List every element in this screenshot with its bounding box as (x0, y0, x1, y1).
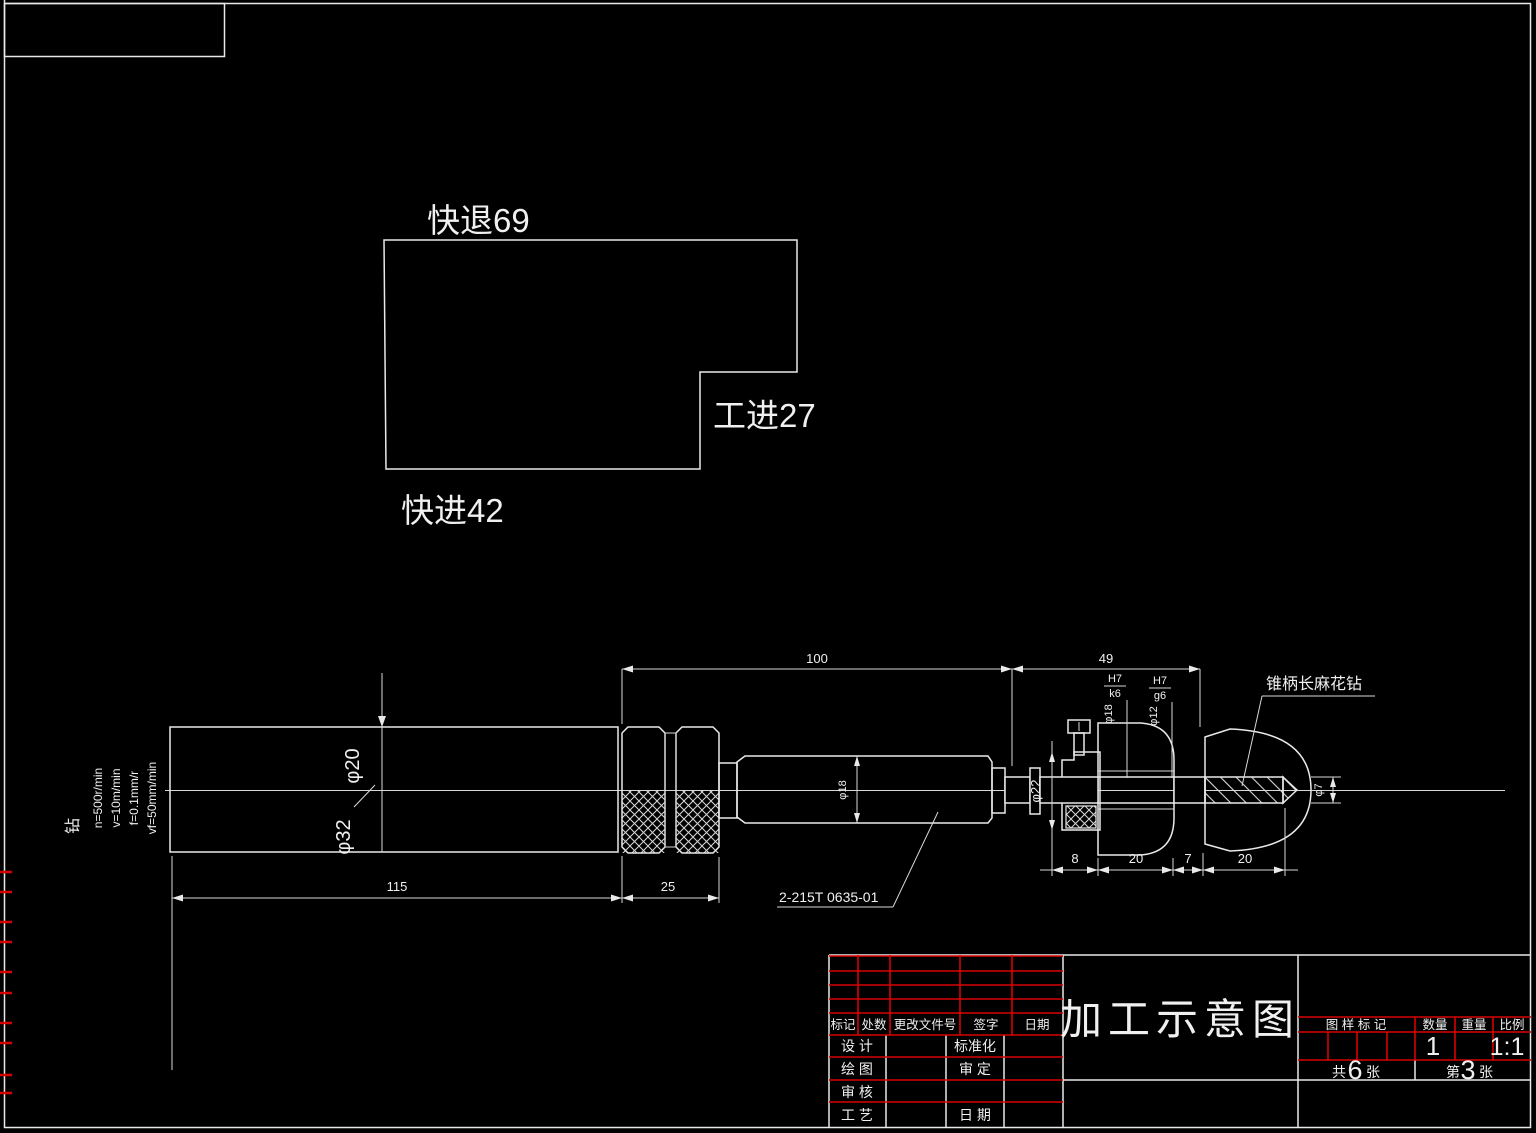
dim-dia32-text: φ32 (333, 819, 355, 854)
role-design: 设 计 (841, 1038, 873, 1054)
rev-header-count: 处数 (861, 1017, 887, 1032)
dim-115-25: 115 25 (172, 856, 719, 1070)
drill-point (1283, 777, 1297, 803)
spindle-assembly (165, 720, 1505, 855)
clamp-knurl-block (1066, 806, 1096, 828)
dim-115-text: 115 (387, 879, 408, 894)
stamp-scale-header: 比例 (1499, 1018, 1524, 1032)
dim-dia22-text: φ22 (1028, 780, 1043, 803)
dim-dia20-dia32: φ20 φ32 (333, 673, 386, 855)
fit1-dia: φ18 (1103, 704, 1115, 723)
stamp-weight-header: 重量 (1461, 1017, 1486, 1032)
param-velocity: v=10m/min (109, 768, 123, 827)
shank-stub (1005, 777, 1030, 803)
dim-dia18-text: φ18 (837, 780, 849, 799)
stamp-mark-header: 图 样 标 记 (1326, 1017, 1387, 1032)
dim-20b-text: 20 (1238, 851, 1252, 866)
dim-dia7-text: φ7 (1313, 783, 1325, 796)
cycle-label-rapid-advance: 快进42 (401, 492, 504, 529)
dim-fit-h7g6: H7 g6 φ12 (1148, 675, 1172, 778)
sheet-page-prefix: 第 (1446, 1064, 1460, 1080)
sheet-page-suffix: 张 (1479, 1064, 1493, 1080)
dim-20a-text: 20 (1129, 851, 1143, 866)
param-feed: f=0.1mm/r (127, 771, 141, 825)
sleeve-part-no-text: 2-215T 0635-01 (779, 889, 879, 905)
chuck-body (1098, 723, 1174, 855)
work-cycle-diagram: 快退69 工进27 快进42 (384, 202, 816, 529)
sheet-total-suffix: 张 (1366, 1064, 1380, 1080)
cycle-label-rapid-retract: 快退69 (427, 202, 530, 239)
role-date: 日 期 (959, 1107, 991, 1123)
drill-flutes (1205, 777, 1283, 803)
sheet-page-value: 3 (1460, 1055, 1475, 1085)
cad-canvas: 快退69 工进27 快进42 钻 n=500r/min v=10m/min f=… (0, 0, 1536, 1133)
fit2-den: g6 (1154, 690, 1166, 702)
dim-7-text: 7 (1184, 851, 1191, 866)
fit2-num: H7 (1153, 675, 1167, 687)
cycle-outline (384, 240, 797, 469)
rev-header-docno: 更改文件号 (894, 1017, 957, 1032)
fold-marks (0, 872, 12, 1093)
param-feed-rate: vf=50mm/min (145, 762, 159, 834)
role-standardize: 标准化 (954, 1038, 996, 1054)
rev-header-sign: 签字 (973, 1017, 998, 1032)
drill-shank-b (1174, 777, 1205, 803)
stamp-qty-header: 数量 (1422, 1017, 1447, 1032)
role-draw: 绘 图 (841, 1061, 873, 1077)
fit2-dia: φ12 (1148, 706, 1160, 725)
drill-name-text: 锥柄长麻花钻 (1266, 675, 1362, 693)
dim-dia20-text: φ20 (342, 748, 364, 783)
cycle-label-work-feed: 工进27 (713, 397, 816, 434)
role-process: 工 艺 (841, 1107, 873, 1123)
rev-header-date: 日期 (1024, 1018, 1049, 1032)
dim-49-text: 49 (1099, 651, 1113, 666)
dim-8-text: 8 (1071, 851, 1078, 866)
fit1-den: k6 (1109, 688, 1121, 700)
knurl-fill-1 (622, 791, 665, 853)
fit1-num: H7 (1108, 673, 1122, 685)
stamp-scale-value: 1:1 (1490, 1033, 1525, 1061)
role-check: 审 核 (841, 1084, 873, 1100)
stamp-qty-value: 1 (1426, 1031, 1440, 1061)
knurl-fill-2 (676, 791, 719, 853)
cad-drawing-page: 快退69 工进27 快进42 钻 n=500r/min v=10m/min f=… (0, 0, 1536, 1133)
dim-dia18-sleeve: φ18 (837, 756, 860, 823)
drill-sleeve (737, 756, 992, 823)
title-block: 标记 处数 更改文件号 签字 日期 设 计 绘 图 审 核 工 艺 标准化 审 … (829, 955, 1531, 1127)
cutting-parameters: 钻 n=500r/min v=10m/min f=0.1mm/r vf=50mm… (64, 762, 159, 834)
dim-25-text: 25 (661, 879, 675, 894)
drawing-title: 加工示意图 (1060, 996, 1300, 1043)
param-speed: n=500r/min (91, 768, 105, 828)
sleeve-part-label: 2-215T 0635-01 (777, 812, 938, 907)
sheet-total-value: 6 (1347, 1055, 1362, 1085)
dim-fit-h7k6: H7 k6 φ18 (1103, 673, 1127, 778)
sheet-total-prefix: 共 (1332, 1064, 1346, 1080)
drawing-frame (0, 0, 1531, 1128)
rev-header-mark: 标记 (830, 1018, 856, 1032)
dim-100-text: 100 (806, 651, 828, 666)
param-tool: 钻 (64, 818, 82, 834)
role-approve: 审 定 (959, 1061, 991, 1077)
corner-reference-box (5, 4, 225, 57)
drill-shank-a (1040, 777, 1098, 803)
quill-body (170, 727, 618, 852)
